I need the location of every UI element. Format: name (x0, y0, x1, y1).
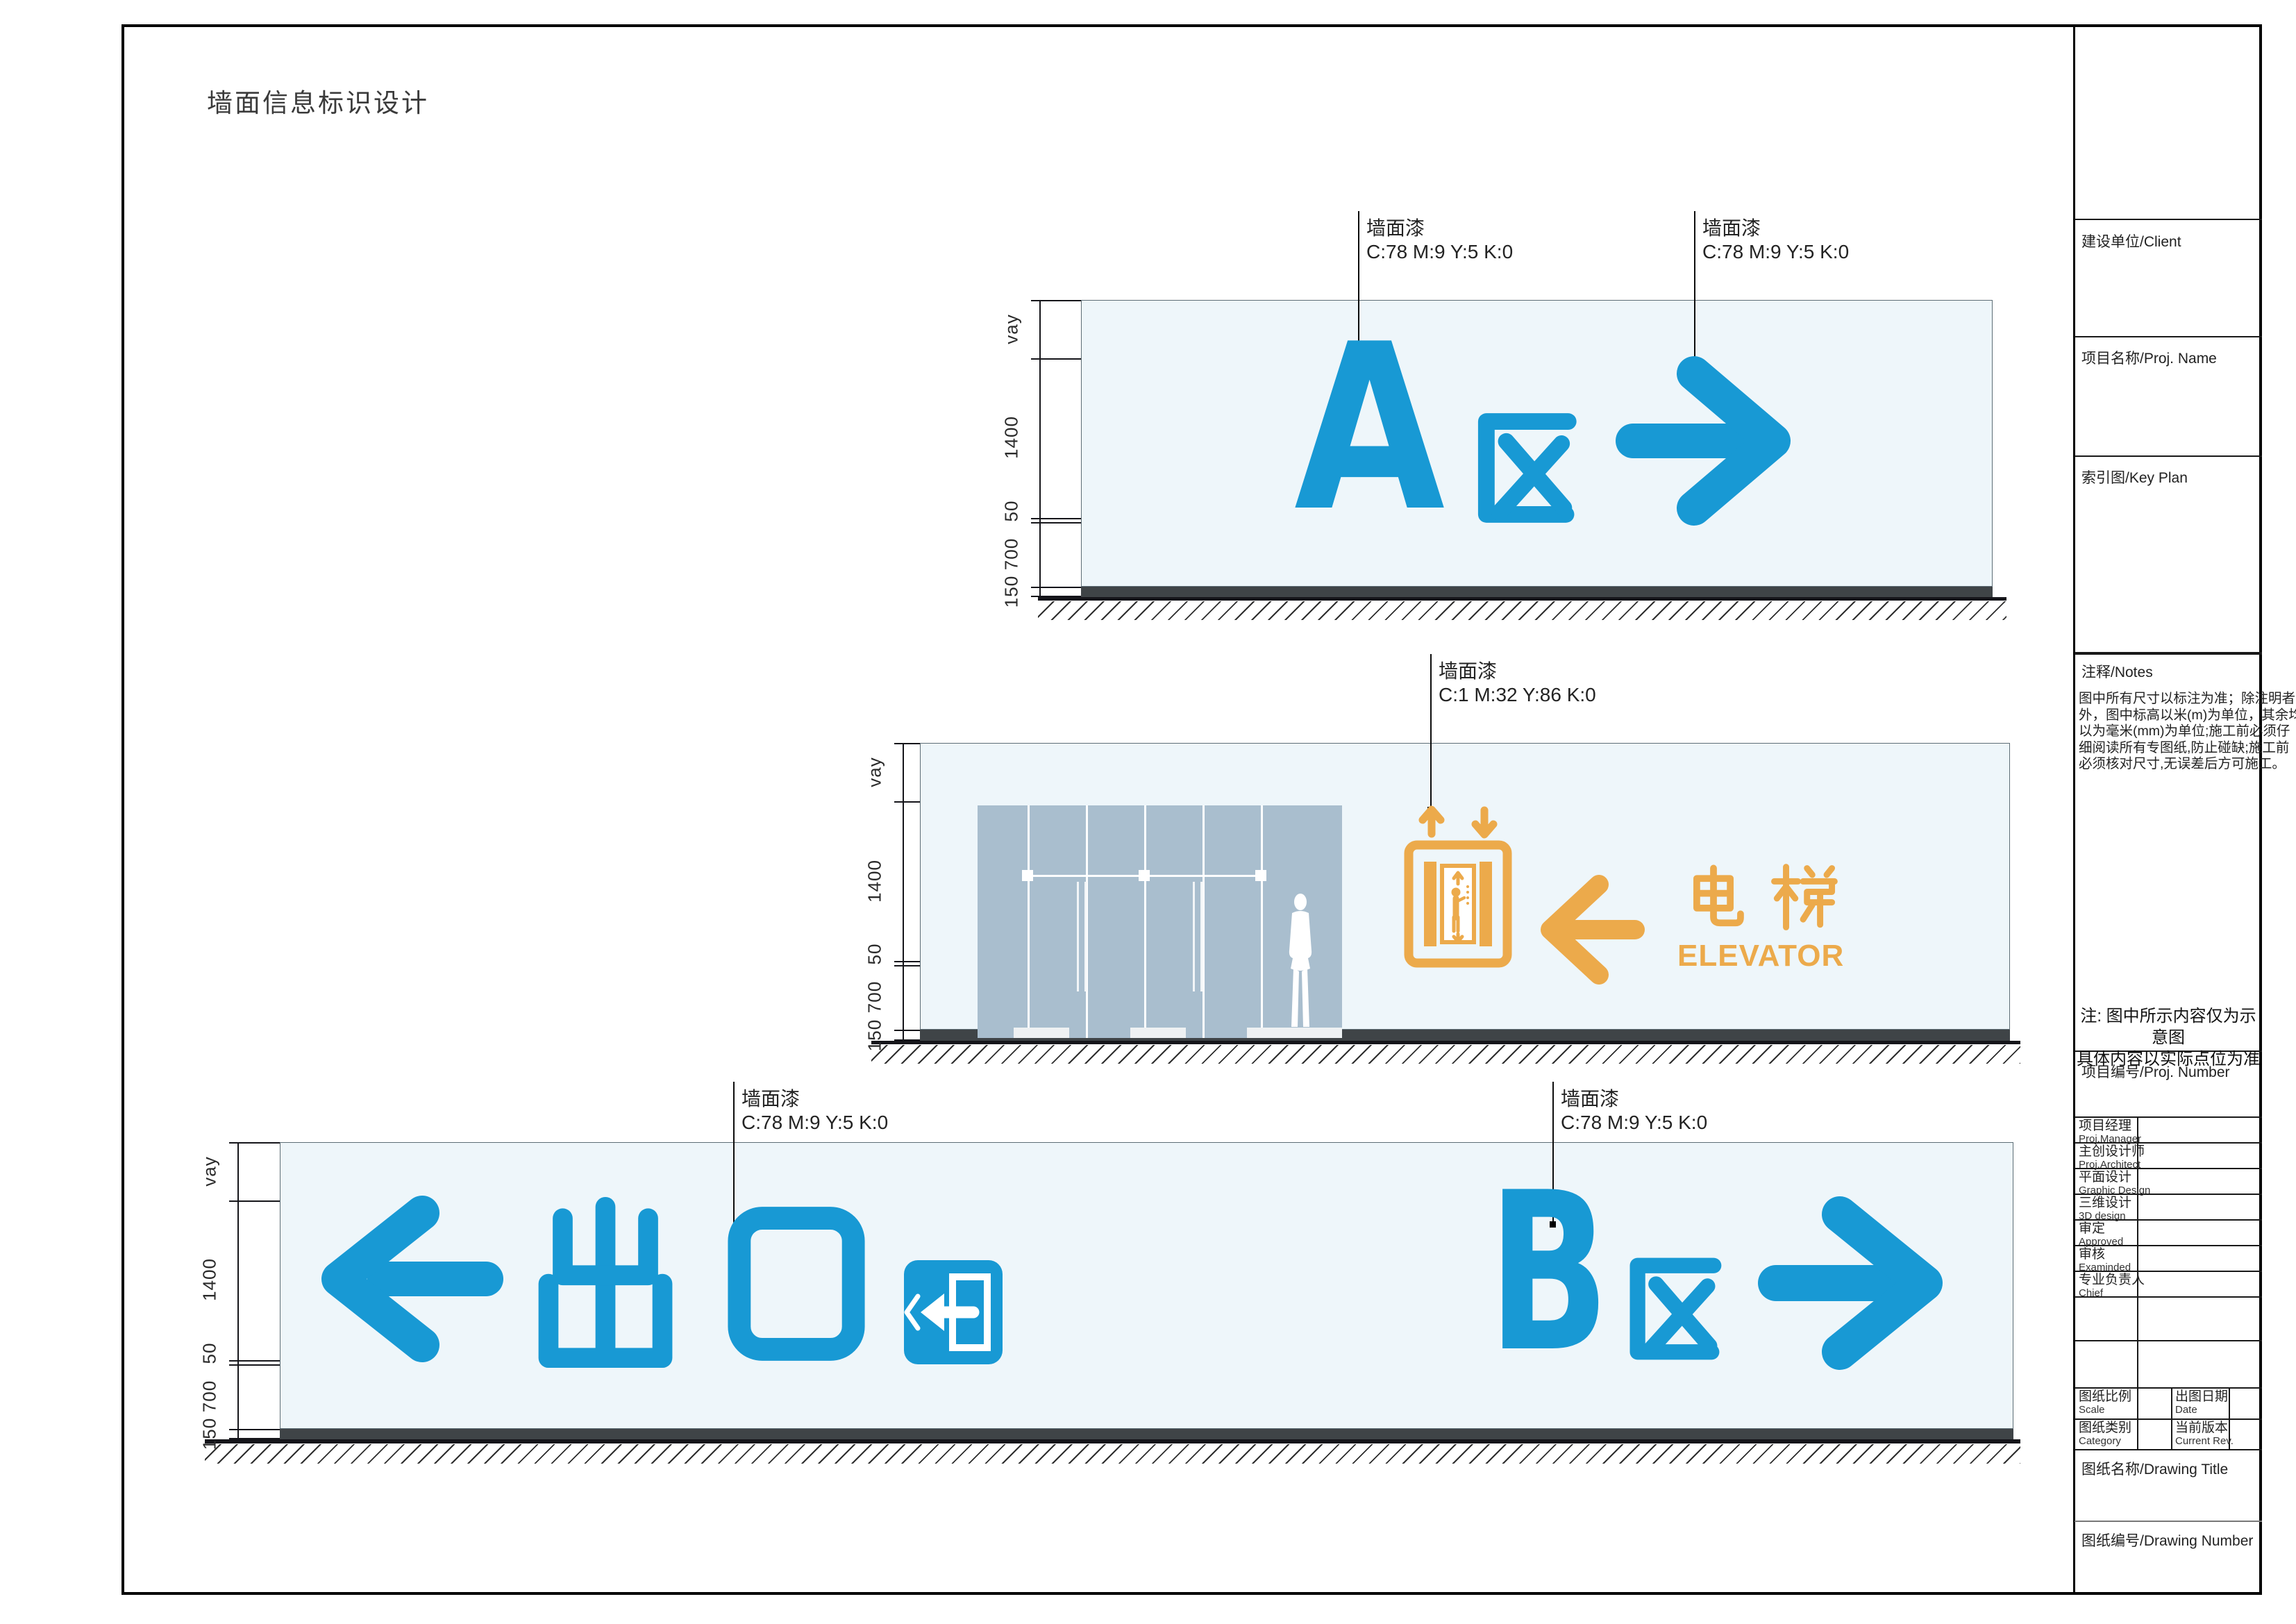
notes-line: 必须核对尺寸,无误差后方可施工。 (2079, 756, 2296, 773)
dim-tick (894, 961, 920, 962)
paint-annotation-cmyk: C:78 M:9 Y:5 K:0 (1561, 1111, 1707, 1135)
personnel-en: Chief (2079, 1287, 2145, 1299)
door-fitting (1022, 870, 1033, 881)
elevator-en-label: ELEVATOR (1677, 939, 1844, 973)
dim-label-1400: 1400 (864, 860, 886, 903)
dim-tick (229, 1200, 280, 1202)
dim-label-50: 50 (199, 1343, 221, 1364)
paint-annotation: 墙面漆 C:78 M:9 Y:5 K:0 (741, 1087, 888, 1135)
personnel-zh: 平面设计 (2079, 1170, 2150, 1184)
personnel-zh: 项目经理 (2079, 1119, 2141, 1133)
scale-zh: 图纸比例 (2079, 1389, 2131, 1404)
dim-label-1400: 1400 (1001, 416, 1023, 459)
paint-annotation-cmyk: C:78 M:9 Y:5 K:0 (1702, 240, 1849, 264)
dim-label-vay: vay (199, 1156, 221, 1186)
dim-label-50: 50 (864, 944, 886, 965)
titleblock-divider (2075, 1521, 2262, 1522)
dim-tick (1031, 300, 1081, 301)
category-en: Category (2079, 1435, 2131, 1447)
page-title: 墙面信息标识设计 (207, 82, 429, 119)
titleblock-column-divider (2171, 1387, 2172, 1449)
personnel-row-3d-design: 三维设计 3D design (2079, 1196, 2131, 1222)
door-handle (1084, 882, 1087, 991)
door-handle (1200, 882, 1203, 991)
personnel-row-proj-architect: 主创设计师 Proj.Architect (2079, 1144, 2145, 1171)
personnel-en: 3D design (2079, 1210, 2131, 1222)
zone-suffix-qu-glyph (1468, 408, 1579, 528)
zone-b-letter: B (1488, 1164, 1609, 1383)
arrow-left-icon (1531, 869, 1645, 991)
door-mullion (1203, 805, 1205, 1038)
titleblock-divider (2075, 455, 2262, 457)
titleblock-divider (2075, 219, 2262, 220)
paint-annotation-cmyk: C:1 M:32 Y:86 K:0 (1439, 683, 1596, 707)
personnel-zh: 主创设计师 (2079, 1144, 2145, 1159)
arrow-right-icon (1616, 355, 1798, 526)
dim-tick (894, 965, 920, 966)
titleblock-divider (2075, 336, 2262, 337)
paint-annotation-label: 墙面漆 (1439, 660, 1596, 683)
door-sill (1130, 1028, 1186, 1038)
dim-tick (229, 1142, 280, 1144)
date-en: Date (2175, 1404, 2228, 1416)
scale-label: 图纸比例 Scale (2079, 1389, 2131, 1416)
leader-line (1430, 654, 1432, 812)
titleblock-drawing-title-label: 图纸名称/Drawing Title (2081, 1458, 2228, 1479)
notes-line: 细阅读所有专图纸,防止碰缺;施工前 (2079, 740, 2296, 757)
door-sill (1014, 1028, 1069, 1038)
notes-line: 图中所有尺寸以标注为准；除注明者 (2079, 691, 2296, 708)
dim-tick (894, 1039, 920, 1041)
paint-annotation-cmyk: C:78 M:9 Y:5 K:0 (1366, 240, 1513, 264)
personnel-en: Examinded (2079, 1262, 2131, 1273)
exit-zh-chu-glyph (532, 1198, 679, 1366)
paint-annotation: 墙面漆 C:78 M:9 Y:5 K:0 (1366, 217, 1513, 264)
dim-label-vay: vay (1001, 314, 1023, 344)
notes-line: 以为毫米(mm)为单位;施工前必须仔 (2079, 723, 2296, 740)
door-mullion (1144, 805, 1146, 1038)
baseboard-exit-zone-b (280, 1429, 2013, 1439)
titleblock-key-plan-label: 索引图/Key Plan (2081, 467, 2188, 487)
titleblock-divider (2075, 1116, 2262, 1118)
personnel-zh: 三维设计 (2079, 1196, 2131, 1210)
dim-tick (229, 1438, 280, 1439)
titleblock-divider (2075, 1340, 2262, 1341)
dim-label-1400: 1400 (199, 1258, 221, 1301)
titleblock-proj-name-label: 项目名称/Proj. Name (2081, 347, 2217, 368)
drawing-sheet: 墙面信息标识设计 vay 1400 50 700 150 墙面漆 C:78 M:… (0, 0, 2296, 1624)
paint-annotation-label: 墙面漆 (1561, 1087, 1707, 1111)
personnel-en: Proj.Architect (2079, 1159, 2145, 1171)
titleblock-divider (2075, 1449, 2262, 1450)
zone-a-letter: A (1294, 314, 1445, 543)
paint-annotation: 墙面漆 C:78 M:9 Y:5 K:0 (1561, 1087, 1707, 1135)
paint-annotation-label: 墙面漆 (1702, 217, 1849, 240)
dim-label-700: 700 (199, 1380, 221, 1412)
ground-hatch-elevator (871, 1045, 2020, 1064)
exit-icon (904, 1260, 1003, 1364)
titleblock-proj-number-label: 项目编号/Proj. Number (2081, 1061, 2230, 1082)
personnel-row-chief: 专业负责人 Chief (2079, 1273, 2145, 1299)
arrow-right-icon (1758, 1196, 1950, 1371)
personnel-zh: 审定 (2079, 1221, 2123, 1236)
titleblock-drawing-number-label: 图纸编号/Drawing Number (2081, 1530, 2253, 1550)
arrow-left-icon (303, 1196, 504, 1362)
door-fitting (1255, 870, 1266, 881)
ground-hatch-zone-a (1038, 601, 2006, 620)
paint-annotation: 墙面漆 C:78 M:9 Y:5 K:0 (1702, 217, 1849, 264)
personnel-zh: 专业负责人 (2079, 1273, 2145, 1287)
current-rev-en: Current Rev. (2175, 1435, 2234, 1447)
personnel-zh: 审核 (2079, 1247, 2131, 1262)
dim-label-150: 150 (1001, 576, 1023, 608)
elevator-zh-dian-glyph (1680, 863, 1747, 934)
titleblock-divider (2075, 1418, 2262, 1420)
ground-line-exit-zone-b (205, 1439, 2020, 1443)
date-zh: 出图日期 (2175, 1389, 2228, 1404)
dim-tick (229, 1360, 280, 1362)
dim-tick (1031, 518, 1081, 519)
ground-hatch-exit-zone-b (205, 1444, 2020, 1464)
category-zh: 图纸类别 (2079, 1421, 2131, 1435)
glass-doors (978, 805, 1342, 1038)
disclaimer-note-line: 注: 图中所示内容仅为示意图 (2075, 1005, 2262, 1048)
personnel-en: Proj.Manager (2079, 1133, 2141, 1145)
paint-annotation-label: 墙面漆 (1366, 217, 1513, 240)
current-rev-zh: 当前版本 (2175, 1421, 2234, 1435)
titleblock-divider (2075, 652, 2262, 655)
elevator-icon (1403, 802, 1513, 969)
titleblock-notes-label: 注释/Notes (2081, 661, 2153, 682)
dim-tick (229, 1364, 280, 1366)
zone-suffix-qu-glyph (1618, 1253, 1727, 1364)
dim-tick (1031, 587, 1081, 588)
dim-label-vay: vay (864, 757, 886, 787)
dimension-line (237, 1142, 239, 1439)
notes-line: 外，图中标高以米(m)为单位，其余均 (2079, 708, 2296, 724)
door-handle (1077, 882, 1079, 991)
titleblock-divider (2075, 1387, 2262, 1389)
dim-tick (229, 1429, 280, 1430)
exit-zh-kou-glyph (725, 1204, 868, 1364)
elevator-zh-ti-glyph (1769, 861, 1838, 935)
notes-paragraph: 图中所有尺寸以标注为准；除注明者 外，图中标高以米(m)为单位，其余均 以为毫米… (2079, 691, 2296, 773)
personnel-row-examined: 审核 Examinded (2079, 1247, 2131, 1273)
door-handle (1193, 882, 1195, 991)
dimension-line (1039, 300, 1041, 597)
category-label: 图纸类别 Category (2079, 1421, 2131, 1447)
door-fitting (1139, 870, 1150, 881)
dim-tick (1031, 522, 1081, 524)
dim-label-150: 150 (864, 1019, 886, 1051)
paint-annotation-cmyk: C:78 M:9 Y:5 K:0 (741, 1111, 888, 1135)
ground-line-zone-a (1038, 597, 2006, 601)
baseboard-zone-a (1081, 587, 1993, 597)
personnel-row-proj-manager: 项目经理 Proj.Manager (2079, 1119, 2141, 1145)
titleblock-client-label: 建设单位/Client (2081, 231, 2181, 251)
current-rev-label: 当前版本 Current Rev. (2175, 1421, 2234, 1447)
personnel-row-graphic-design: 平面设计 Graphic Design (2079, 1170, 2150, 1196)
door-mullion (1028, 805, 1030, 1038)
dim-tick (1031, 596, 1081, 597)
paint-annotation: 墙面漆 C:1 M:32 Y:86 K:0 (1439, 660, 1596, 707)
dimension-line (903, 743, 904, 1041)
dim-label-700: 700 (864, 981, 886, 1013)
dim-tick (894, 743, 920, 744)
paint-annotation-label: 墙面漆 (741, 1087, 888, 1111)
personnel-en: Graphic Design (2079, 1184, 2150, 1196)
door-mullion (1261, 805, 1263, 1038)
personnel-en: Approved (2079, 1236, 2123, 1248)
dim-tick (1031, 358, 1081, 360)
person-silhouette (1280, 891, 1321, 1038)
dim-tick (894, 801, 920, 803)
dim-label-700: 700 (1001, 538, 1023, 570)
dim-label-50: 50 (1001, 501, 1023, 522)
personnel-row-approved: 审定 Approved (2079, 1221, 2123, 1248)
date-label: 出图日期 Date (2175, 1389, 2228, 1416)
scale-en: Scale (2079, 1404, 2131, 1416)
ground-line-elevator (871, 1041, 2020, 1044)
dim-label-150: 150 (199, 1418, 221, 1450)
dim-tick (894, 1030, 920, 1031)
titleblock-left-border (2073, 24, 2075, 1595)
